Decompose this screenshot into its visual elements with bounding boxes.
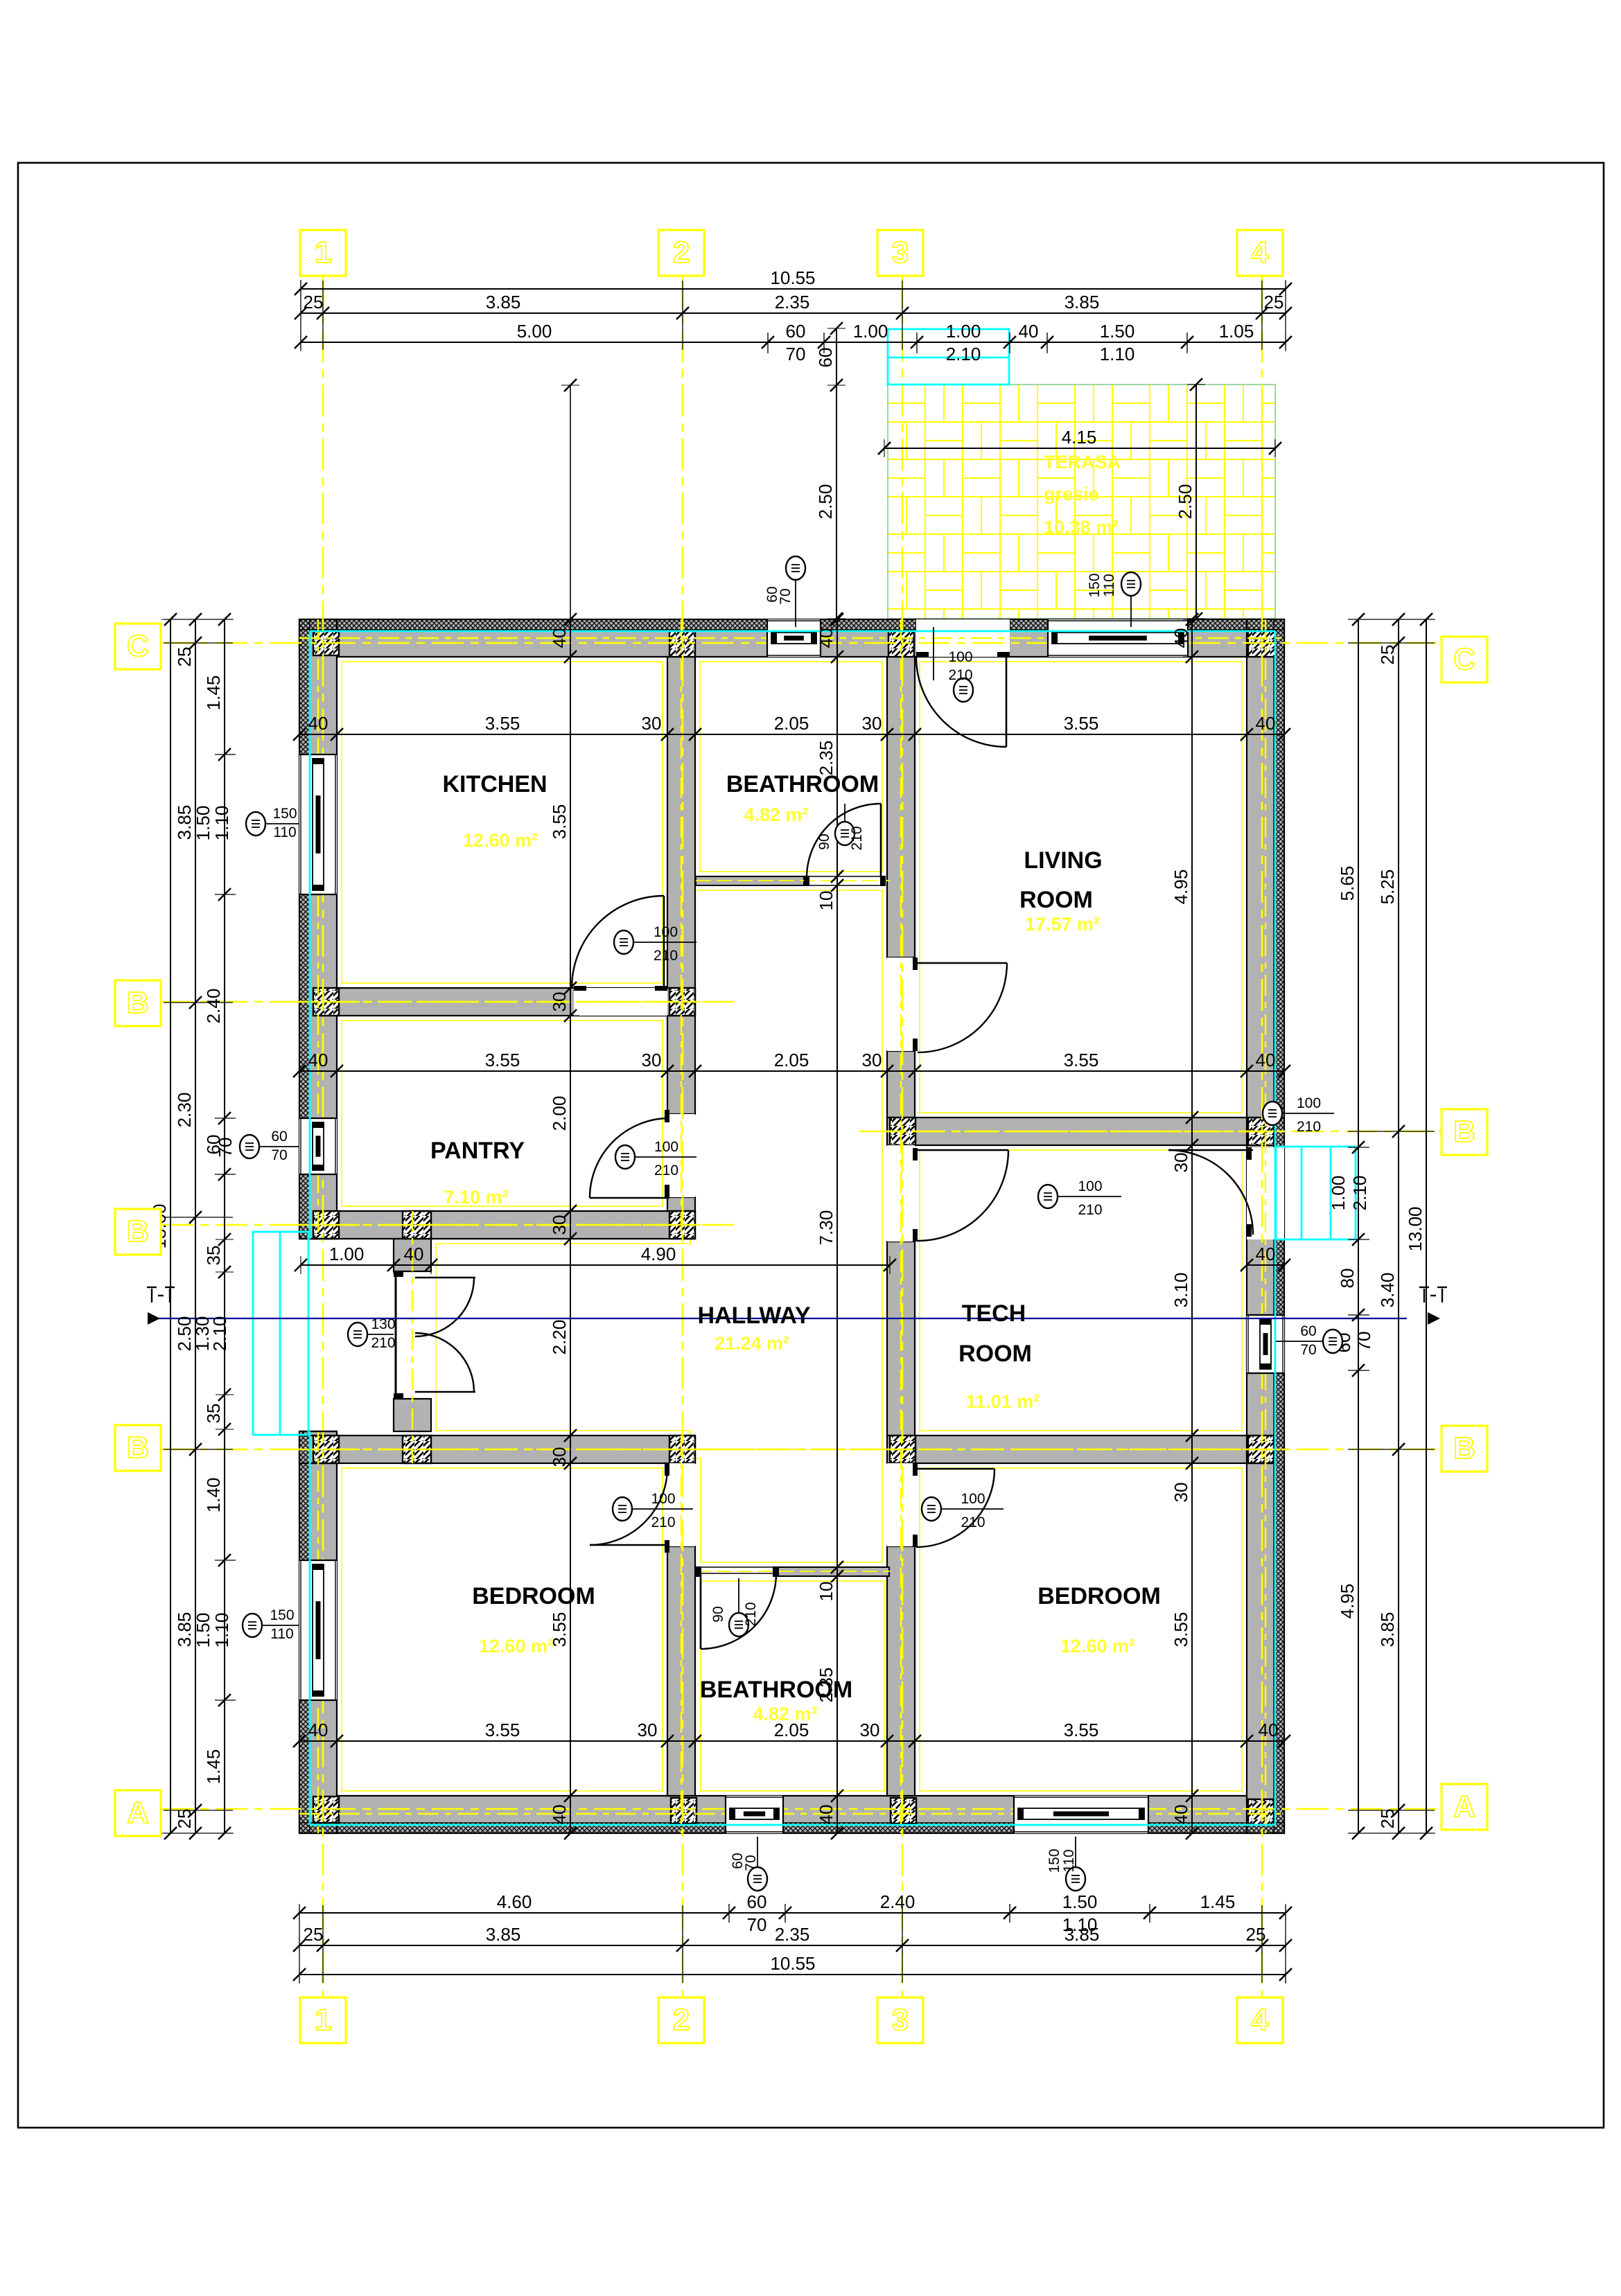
svg-text:30: 30 <box>862 1050 882 1070</box>
svg-text:KITCHEN: KITCHEN <box>442 771 547 797</box>
svg-text:90: 90 <box>710 1606 726 1622</box>
svg-text:B: B <box>127 1431 149 1465</box>
svg-text:2.35: 2.35 <box>775 1924 810 1945</box>
svg-text:40: 40 <box>1259 1720 1279 1740</box>
svg-text:5.25: 5.25 <box>1377 869 1398 905</box>
svg-text:30: 30 <box>1171 1153 1191 1173</box>
svg-text:HALLWAY: HALLWAY <box>697 1302 810 1329</box>
svg-text:12.60 m²: 12.60 m² <box>479 1636 554 1657</box>
svg-text:70: 70 <box>747 1914 767 1935</box>
svg-text:210: 210 <box>948 667 972 683</box>
svg-text:11.01 m²: 11.01 m² <box>966 1391 1040 1412</box>
svg-text:35: 35 <box>203 1404 224 1424</box>
svg-text:1: 1 <box>315 236 331 270</box>
svg-text:35: 35 <box>203 1246 224 1266</box>
svg-text:BEDROOM: BEDROOM <box>1037 1583 1161 1609</box>
svg-text:40: 40 <box>549 628 570 648</box>
svg-text:12.60 m²: 12.60 m² <box>1060 1636 1135 1657</box>
svg-text:2: 2 <box>673 236 690 270</box>
svg-text:150: 150 <box>1087 573 1103 597</box>
svg-text:25: 25 <box>174 647 195 667</box>
svg-text:30: 30 <box>1171 1483 1191 1503</box>
svg-text:30: 30 <box>860 1720 880 1740</box>
svg-text:40: 40 <box>308 1720 328 1740</box>
svg-text:C: C <box>1453 642 1475 676</box>
svg-text:130: 130 <box>371 1316 395 1332</box>
svg-text:60: 60 <box>271 1129 287 1145</box>
svg-text:110: 110 <box>273 824 296 840</box>
svg-text:ROOM: ROOM <box>1019 887 1093 913</box>
svg-text:150: 150 <box>272 806 297 822</box>
svg-text:17.57 m²: 17.57 m² <box>1025 914 1100 935</box>
svg-text:1.45: 1.45 <box>1200 1891 1236 1912</box>
svg-text:3.55: 3.55 <box>485 1720 520 1740</box>
svg-text:gresie: gresie <box>1044 484 1099 504</box>
svg-text:1.45: 1.45 <box>203 675 224 711</box>
svg-text:13.00: 13.00 <box>1405 1206 1426 1251</box>
svg-text:LIVING: LIVING <box>1024 847 1102 874</box>
svg-text:10: 10 <box>816 1582 836 1602</box>
svg-text:4.60: 4.60 <box>497 1891 532 1912</box>
svg-text:80: 80 <box>1337 1269 1358 1289</box>
svg-text:40: 40 <box>1019 321 1039 342</box>
svg-text:40: 40 <box>1256 1050 1276 1070</box>
svg-text:3.85: 3.85 <box>1064 1924 1100 1945</box>
svg-text:3.85: 3.85 <box>486 292 521 312</box>
svg-text:1.00: 1.00 <box>329 1244 365 1264</box>
svg-text:25: 25 <box>304 292 324 312</box>
svg-text:2.50: 2.50 <box>815 484 836 520</box>
svg-text:70: 70 <box>778 588 794 604</box>
svg-text:70: 70 <box>271 1147 287 1163</box>
svg-text:70: 70 <box>215 1138 236 1158</box>
svg-text:4.15: 4.15 <box>1062 427 1097 448</box>
svg-text:40: 40 <box>404 1244 424 1264</box>
svg-text:10.38 m²: 10.38 m² <box>1044 517 1119 538</box>
svg-text:30: 30 <box>549 1447 570 1467</box>
svg-text:2.05: 2.05 <box>774 1050 809 1070</box>
svg-text:B: B <box>127 986 149 1020</box>
svg-text:110: 110 <box>1061 1849 1077 1872</box>
svg-text:3.85: 3.85 <box>174 1612 195 1648</box>
svg-text:4.95: 4.95 <box>1337 1584 1358 1619</box>
svg-text:40: 40 <box>1256 713 1276 734</box>
svg-text:7.30: 7.30 <box>816 1210 836 1246</box>
svg-text:70: 70 <box>1300 1342 1316 1358</box>
svg-text:25: 25 <box>174 1809 195 1829</box>
svg-text:2.10: 2.10 <box>946 344 981 364</box>
svg-text:110: 110 <box>1101 574 1117 597</box>
svg-text:40: 40 <box>1256 1244 1276 1264</box>
svg-text:4: 4 <box>1252 236 1269 270</box>
svg-text:60: 60 <box>747 1891 767 1912</box>
svg-text:90: 90 <box>816 833 832 849</box>
svg-text:C: C <box>127 629 149 663</box>
svg-text:A: A <box>127 1796 149 1830</box>
svg-text:1.00: 1.00 <box>853 321 888 342</box>
svg-text:210: 210 <box>371 1335 395 1351</box>
svg-text:10: 10 <box>816 891 836 911</box>
svg-text:30: 30 <box>642 1050 662 1070</box>
svg-text:3.85: 3.85 <box>1064 292 1100 312</box>
svg-text:100: 100 <box>651 1491 675 1507</box>
svg-text:70: 70 <box>743 1855 759 1871</box>
svg-text:1.45: 1.45 <box>203 1749 224 1785</box>
svg-text:40: 40 <box>1171 1805 1191 1825</box>
svg-text:3.55: 3.55 <box>1064 1720 1099 1740</box>
svg-text:2.50: 2.50 <box>1175 484 1195 520</box>
svg-text:2.20: 2.20 <box>549 1320 570 1355</box>
svg-text:2.05: 2.05 <box>774 713 809 734</box>
svg-text:3: 3 <box>892 2003 909 2037</box>
svg-text:21.24 m²: 21.24 m² <box>715 1333 789 1354</box>
svg-text:3.10: 3.10 <box>1171 1273 1191 1308</box>
svg-text:3.55: 3.55 <box>1171 1612 1191 1648</box>
svg-text:1.50: 1.50 <box>193 1613 213 1648</box>
svg-text:BEATHROOM: BEATHROOM <box>700 1677 852 1703</box>
svg-text:100: 100 <box>948 649 972 665</box>
svg-text:2.35: 2.35 <box>816 741 836 776</box>
svg-text:7.10 m²: 7.10 m² <box>444 1187 508 1208</box>
svg-text:1.10: 1.10 <box>211 1613 232 1648</box>
svg-text:30: 30 <box>638 1720 658 1740</box>
svg-text:3.85: 3.85 <box>486 1924 521 1945</box>
svg-text:25: 25 <box>1264 292 1284 312</box>
svg-text:3.55: 3.55 <box>485 1050 520 1070</box>
svg-text:3.55: 3.55 <box>1064 1050 1099 1070</box>
svg-text:BEATHROOM: BEATHROOM <box>726 771 879 797</box>
svg-text:12.60 m²: 12.60 m² <box>463 830 538 851</box>
svg-text:1: 1 <box>315 2003 331 2037</box>
svg-text:ROOM: ROOM <box>958 1341 1032 1367</box>
svg-text:PANTRY: PANTRY <box>430 1138 525 1164</box>
svg-text:210: 210 <box>654 948 678 964</box>
svg-text:3.40: 3.40 <box>1377 1273 1398 1308</box>
svg-text:40: 40 <box>816 1805 836 1825</box>
svg-text:210: 210 <box>1297 1119 1321 1135</box>
svg-text:70: 70 <box>1353 1332 1374 1352</box>
svg-text:2.10: 2.10 <box>1349 1176 1370 1211</box>
svg-text:210: 210 <box>961 1515 985 1530</box>
svg-text:3.85: 3.85 <box>174 805 195 840</box>
svg-text:40: 40 <box>308 1050 328 1070</box>
svg-text:2.00: 2.00 <box>549 1096 570 1131</box>
svg-text:A: A <box>1453 1790 1475 1823</box>
svg-text:210: 210 <box>743 1602 759 1626</box>
svg-text:TECH: TECH <box>962 1300 1026 1327</box>
svg-text:B: B <box>127 1215 149 1248</box>
svg-text:40: 40 <box>308 713 328 734</box>
svg-text:5.65: 5.65 <box>1337 866 1358 901</box>
svg-text:2.35: 2.35 <box>775 292 810 312</box>
svg-text:110: 110 <box>270 1626 293 1642</box>
svg-text:210: 210 <box>651 1515 675 1530</box>
svg-text:40: 40 <box>1171 628 1191 648</box>
svg-text:1.10: 1.10 <box>211 806 232 841</box>
svg-text:30: 30 <box>862 713 882 734</box>
svg-text:1.05: 1.05 <box>1219 321 1254 342</box>
svg-text:3.55: 3.55 <box>485 713 520 734</box>
svg-text:25: 25 <box>1377 645 1398 665</box>
svg-text:1.00: 1.00 <box>1328 1176 1349 1211</box>
svg-text:10.55: 10.55 <box>770 267 815 288</box>
svg-text:3.55: 3.55 <box>1064 713 1099 734</box>
svg-text:150: 150 <box>1046 1848 1062 1873</box>
svg-text:100: 100 <box>1078 1178 1102 1194</box>
svg-text:4: 4 <box>1252 2003 1269 2037</box>
svg-text:4.82 m²: 4.82 m² <box>744 804 808 825</box>
svg-text:100: 100 <box>1297 1095 1321 1111</box>
svg-text:40: 40 <box>816 628 836 648</box>
svg-text:1.40: 1.40 <box>203 1478 224 1513</box>
svg-text:1.50: 1.50 <box>1062 1891 1098 1912</box>
svg-text:TERASA: TERASA <box>1044 452 1121 473</box>
svg-text:2.30: 2.30 <box>174 1093 195 1128</box>
svg-text:BEDROOM: BEDROOM <box>472 1583 595 1609</box>
svg-text:3.55: 3.55 <box>549 804 570 840</box>
svg-text:1.50: 1.50 <box>1100 321 1135 342</box>
svg-text:30: 30 <box>549 992 570 1012</box>
svg-text:25: 25 <box>1377 1809 1398 1829</box>
svg-text:25: 25 <box>304 1924 324 1945</box>
svg-text:30: 30 <box>642 713 662 734</box>
svg-text:40: 40 <box>549 1805 570 1825</box>
svg-text:100: 100 <box>654 1139 678 1155</box>
svg-text:210: 210 <box>654 1163 678 1178</box>
svg-text:100: 100 <box>654 924 678 940</box>
svg-text:3: 3 <box>892 236 909 270</box>
svg-text:10.55: 10.55 <box>770 1953 815 1974</box>
svg-text:2: 2 <box>673 2003 690 2037</box>
svg-text:2.40: 2.40 <box>203 989 224 1024</box>
svg-text:B: B <box>1453 1115 1475 1149</box>
svg-text:4.95: 4.95 <box>1171 869 1191 905</box>
svg-text:210: 210 <box>849 826 865 850</box>
svg-text:2.40: 2.40 <box>880 1891 915 1912</box>
svg-text:B: B <box>1453 1431 1475 1465</box>
svg-text:30: 30 <box>549 1215 570 1235</box>
svg-text:210: 210 <box>1078 1202 1102 1218</box>
svg-text:5.00: 5.00 <box>517 321 552 342</box>
svg-text:1.50: 1.50 <box>193 806 213 841</box>
svg-text:4.82 m²: 4.82 m² <box>753 1704 817 1724</box>
svg-text:60: 60 <box>1300 1323 1316 1339</box>
svg-text:1.00: 1.00 <box>946 321 981 342</box>
svg-text:1.10: 1.10 <box>1100 344 1135 364</box>
svg-text:60: 60 <box>786 321 806 342</box>
svg-text:100: 100 <box>961 1491 985 1507</box>
svg-text:25: 25 <box>1246 1924 1266 1945</box>
svg-text:2.10: 2.10 <box>209 1316 230 1352</box>
svg-text:150: 150 <box>270 1607 294 1623</box>
svg-text:60: 60 <box>815 348 836 368</box>
svg-text:4.90: 4.90 <box>641 1244 676 1264</box>
svg-text:70: 70 <box>786 344 806 364</box>
svg-text:3.85: 3.85 <box>1377 1612 1398 1648</box>
